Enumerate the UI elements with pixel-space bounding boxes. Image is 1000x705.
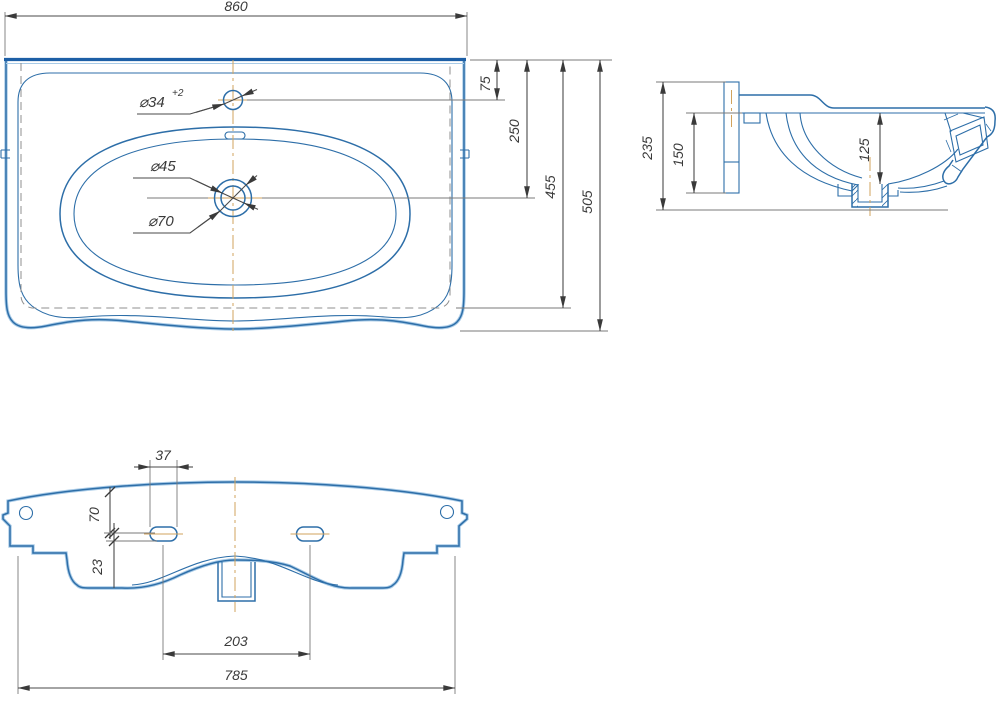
deck-top-profile [739, 95, 985, 108]
dim-side-view: 235 150 125 [639, 82, 948, 210]
bowl-inner-surface-left [800, 113, 862, 178]
dim-label-455: 455 [542, 175, 558, 199]
bottom-view: 37 70 23 203 785 [3, 447, 467, 694]
top-view: ⌀34 +2 ⌀45 ⌀70 860 [1, 0, 612, 333]
dim-label-203: 203 [223, 633, 248, 649]
dim-label-785: 785 [224, 667, 248, 683]
dim-label-70: 70 [86, 507, 102, 523]
dim-label-37: 37 [155, 447, 172, 463]
side-view: 235 150 125 [639, 82, 995, 216]
dim-label-250: 250 [506, 119, 522, 144]
faucet-diameter-label: ⌀34 [139, 94, 165, 111]
mounting-hole-left [20, 507, 33, 520]
dim-label-860: 860 [224, 0, 248, 14]
overflow-rim-section [943, 107, 995, 184]
bowl-wall-section [766, 113, 858, 191]
overflow-slot [225, 132, 245, 139]
bowl-wall-right [898, 181, 947, 192]
dim-slot-spacing: 203 [163, 545, 310, 660]
mounting-hole-right [441, 506, 454, 519]
drain-inner-label: ⌀45 [150, 158, 176, 175]
deck-bracket [744, 113, 760, 123]
dim-label-150: 150 [670, 143, 686, 167]
bowl-inner-oval [74, 139, 396, 285]
dim-label-125: 125 [856, 138, 872, 162]
dim-overall-width: 860 [5, 0, 467, 56]
dim-label-75: 75 [477, 76, 493, 92]
dim-vertical-stack: 75 250 455 505 [247, 60, 612, 331]
drain-outer-callout: ⌀70 [133, 176, 257, 234]
technical-drawing-page: ⌀34 +2 ⌀45 ⌀70 860 [0, 0, 1000, 705]
bowl-outer-oval [60, 127, 410, 298]
dim-mounting-width: 785 [18, 556, 455, 694]
drain-outer-label: ⌀70 [148, 213, 174, 230]
drain-boss-section [838, 157, 898, 216]
washbasin-drawing: ⌀34 +2 ⌀45 ⌀70 860 [0, 0, 1000, 705]
dim-label-235: 235 [639, 136, 655, 161]
dim-slot-width: 37 [134, 447, 193, 527]
dim-slot-offsets: 70 23 [86, 487, 157, 588]
dim-label-23: 23 [89, 559, 105, 576]
dim-label-505: 505 [579, 190, 595, 214]
drain-boss-rear [218, 562, 255, 601]
basin-inner-rim [18, 73, 452, 321]
drain-inner-callout: ⌀45 [133, 158, 258, 209]
faucet-tolerance-label: +2 [172, 88, 184, 99]
